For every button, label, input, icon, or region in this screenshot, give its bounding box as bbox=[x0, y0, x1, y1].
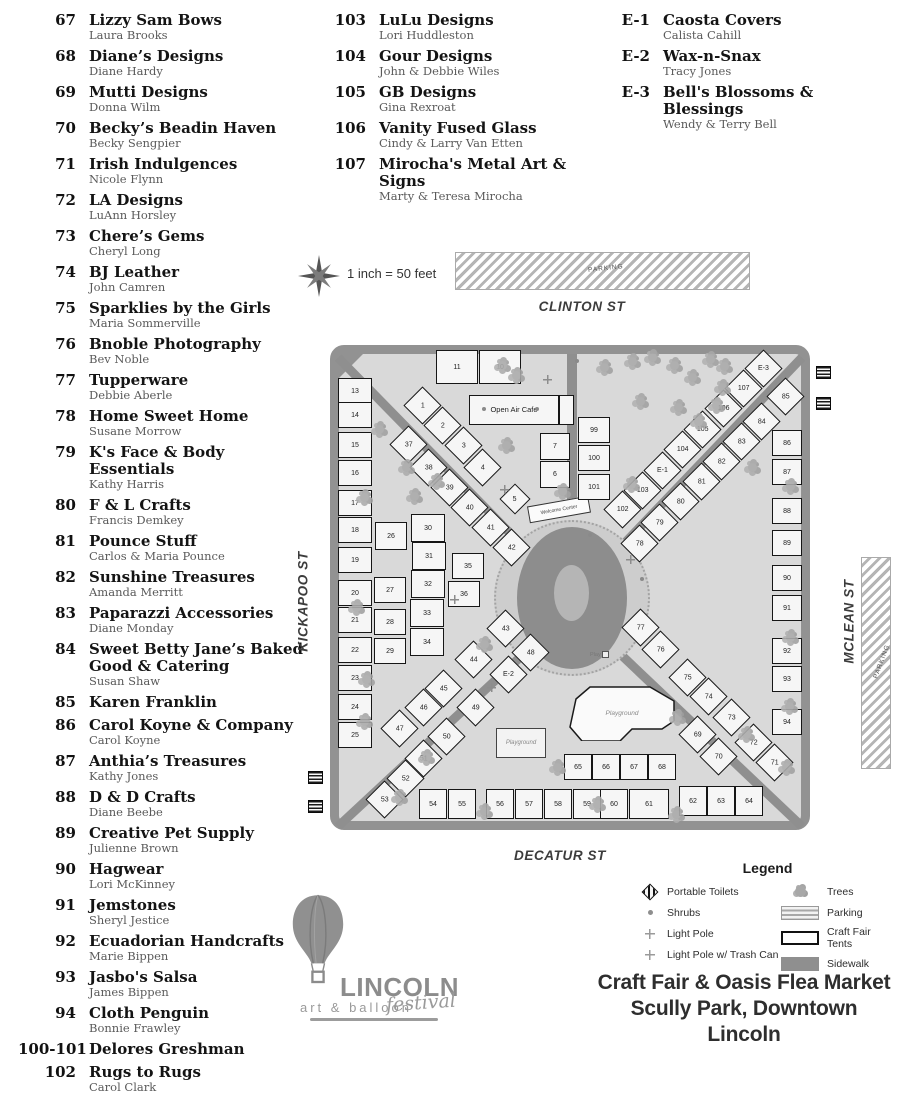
legend-item: Sidewalk bbox=[780, 956, 895, 971]
vendor-person: Marie Bippen bbox=[89, 950, 284, 963]
vendor-person: Tracy Jones bbox=[663, 65, 761, 78]
tree-icon bbox=[674, 403, 683, 412]
vendor-entry: E-3Bell's Blossoms & BlessingsWendy & Te… bbox=[614, 84, 896, 131]
vendor-booth-number: 86 bbox=[18, 717, 76, 747]
vendor-name: Delores Greshman bbox=[89, 1041, 244, 1058]
vendor-booth-number: E-2 bbox=[614, 48, 650, 78]
vendor-person: Nicole Flynn bbox=[89, 173, 237, 186]
parking-label: PARKING bbox=[872, 643, 891, 679]
map-booth-100: 100 bbox=[578, 445, 610, 471]
vendor-name: Wax-n-Snax bbox=[663, 48, 761, 65]
vendor-entry: 85Karen Franklin bbox=[18, 694, 310, 711]
map-booth-6: 6 bbox=[540, 461, 570, 488]
vendor-entry: 80F & L CraftsFrancis Demkey bbox=[18, 497, 310, 527]
vendor-booth-number: 75 bbox=[18, 300, 76, 330]
tree-icon bbox=[360, 717, 369, 726]
vendor-booth-number: 83 bbox=[18, 605, 76, 635]
vendor-person: Becky Sengpier bbox=[89, 137, 276, 150]
vendor-entry: 77TupperwareDebbie Aberle bbox=[18, 372, 310, 402]
vendor-booth-number: 67 bbox=[18, 12, 76, 42]
tree-icon bbox=[720, 362, 729, 371]
vendor-entry: 87Anthia’s TreasuresKathy Jones bbox=[18, 753, 310, 783]
map-booth-68: 68 bbox=[648, 754, 676, 780]
light-pole-icon bbox=[450, 595, 459, 604]
legend-label: Parking bbox=[827, 907, 863, 919]
vendor-person: Amanda Merritt bbox=[89, 586, 255, 599]
tree-icon bbox=[402, 463, 411, 472]
vendor-name: Caosta Covers bbox=[663, 12, 782, 29]
vendor-entry: 94Cloth PenguinBonnie Frawley bbox=[18, 1005, 310, 1035]
legend-label: Light Pole w/ Trash Can bbox=[667, 949, 778, 961]
vendor-name: Becky’s Beadin Haven bbox=[89, 120, 276, 137]
shrub-icon bbox=[588, 533, 592, 537]
map-booth-60: 60 bbox=[600, 789, 628, 819]
map-booth-63: 63 bbox=[707, 786, 735, 816]
legend-item: Light Pole w/ Trash Can bbox=[640, 947, 780, 962]
vendor-name: LuLu Designs bbox=[379, 12, 494, 29]
vendor-person: James Bippen bbox=[89, 986, 197, 999]
tree-icon bbox=[786, 482, 795, 491]
map-booth-86: 86 bbox=[772, 430, 802, 456]
vendor-name: Sparklies by the Girls bbox=[89, 300, 271, 317]
map-booth-91: 91 bbox=[772, 595, 802, 621]
vendor-entry: 73Chere’s GemsCheryl Long bbox=[18, 228, 310, 258]
shrub-icon bbox=[482, 407, 486, 411]
tree-icon bbox=[553, 763, 562, 772]
tree-icon bbox=[672, 810, 681, 819]
tree-icon bbox=[600, 363, 609, 372]
map-booth-31: 31 bbox=[412, 542, 446, 570]
vendor-name: Bnoble Photography bbox=[89, 336, 261, 353]
parking-strip-top: PARKING bbox=[455, 252, 750, 290]
vendor-booth-number: 89 bbox=[18, 825, 76, 855]
map-booth-55: 55 bbox=[448, 789, 476, 819]
vendor-name: Chere’s Gems bbox=[89, 228, 204, 245]
vendor-person: Donna Wilm bbox=[89, 101, 208, 114]
map-booth-88: 88 bbox=[772, 498, 802, 524]
vendor-booth-number: E-1 bbox=[614, 12, 650, 42]
sidewalk-legend-icon bbox=[781, 957, 819, 971]
tree-icon bbox=[786, 633, 795, 642]
vendor-booth-number: 103 bbox=[332, 12, 366, 42]
tree-icon bbox=[432, 477, 441, 486]
map-legend: Legend Portable ToiletsShrubsLight PoleL… bbox=[640, 860, 895, 977]
tree-icon bbox=[782, 763, 791, 772]
tree-icon bbox=[636, 397, 645, 406]
vendor-entry: 75Sparklies by the GirlsMaria Sommervill… bbox=[18, 300, 310, 330]
vendor-name: Bell's Blossoms & Blessings bbox=[663, 84, 896, 118]
park-map: Playground Play Welcome Center Open Air … bbox=[330, 345, 810, 830]
vendor-person: Kathy Jones bbox=[89, 770, 246, 783]
map-booth-92: 92 bbox=[772, 638, 802, 664]
map-booth-101: 101 bbox=[578, 474, 610, 500]
vendor-name: Anthia’s Treasures bbox=[89, 753, 246, 770]
tree-icon bbox=[742, 730, 751, 739]
tree-icon bbox=[502, 441, 511, 450]
vendor-name: Hagwear bbox=[89, 861, 175, 878]
tree-icon bbox=[694, 417, 703, 426]
pole-legend-icon bbox=[645, 929, 655, 939]
portable-toilet-icon bbox=[308, 771, 323, 784]
tree-icon bbox=[362, 675, 371, 684]
vendor-booth-number: 92 bbox=[18, 933, 76, 963]
vendor-person: Carlos & Maria Pounce bbox=[89, 550, 225, 563]
vendor-person: Susane Morrow bbox=[89, 425, 248, 438]
vendor-entry: 92Ecuadorian HandcraftsMarie Bippen bbox=[18, 933, 310, 963]
map-booth-62: 62 bbox=[679, 786, 707, 816]
playground-small: Playground bbox=[496, 728, 546, 758]
play-marker: Play bbox=[590, 651, 609, 658]
legend-item: Light Pole bbox=[640, 926, 780, 941]
vendor-booth-number: 81 bbox=[18, 533, 76, 563]
logo-underline bbox=[310, 1018, 438, 1021]
map-booth-87: 87 bbox=[772, 459, 802, 485]
vendor-entry: 93Jasbo's SalsaJames Bippen bbox=[18, 969, 310, 999]
vendor-entry: 82Sunshine TreasuresAmanda Merritt bbox=[18, 569, 310, 599]
vendor-entry: 69Mutti DesignsDonna Wilm bbox=[18, 84, 310, 114]
map-booth-7: 7 bbox=[540, 433, 570, 460]
tree-icon bbox=[748, 463, 757, 472]
vendor-entry: 84Sweet Betty Jane’s Baked Good & Cateri… bbox=[18, 641, 310, 688]
vendor-entry: 71Irish IndulgencesNicole Flynn bbox=[18, 156, 310, 186]
vendor-entry: 104Gour DesignsJohn & Debbie Wiles bbox=[332, 48, 577, 78]
vendor-booth-number: 73 bbox=[18, 228, 76, 258]
vendor-list-column-3: E-1Caosta CoversCalista CahillE-2Wax-n-S… bbox=[614, 12, 896, 137]
map-booth-13: 13 bbox=[338, 378, 372, 404]
vendor-entry: 81Pounce StuffCarlos & Maria Pounce bbox=[18, 533, 310, 563]
vendor-booth-number: 102 bbox=[18, 1064, 76, 1094]
vendor-name: F & L Crafts bbox=[89, 497, 191, 514]
vendor-person: Cindy & Larry Van Etten bbox=[379, 137, 537, 150]
vendor-person: Carol Clark bbox=[89, 1081, 201, 1094]
play-square-icon bbox=[602, 651, 609, 658]
portable-toilet-icon bbox=[308, 800, 323, 813]
vendor-booth-number: 79 bbox=[18, 444, 76, 491]
tree-icon bbox=[498, 361, 507, 370]
parking-label: PARKING bbox=[588, 263, 624, 274]
map-booth-65: 65 bbox=[564, 754, 592, 780]
vendor-name: Sweet Betty Jane’s Baked Good & Catering bbox=[89, 641, 310, 675]
vendor-entry: 70Becky’s Beadin HavenBecky Sengpier bbox=[18, 120, 310, 150]
vendor-booth-number: 93 bbox=[18, 969, 76, 999]
vendor-person: Susan Shaw bbox=[89, 675, 310, 688]
vendor-booth-number: 68 bbox=[18, 48, 76, 78]
tree-icon bbox=[688, 373, 697, 382]
legend-title: Legend bbox=[640, 860, 895, 876]
map-booth-11: 11 bbox=[436, 350, 478, 384]
map-booth-66: 66 bbox=[592, 754, 620, 780]
map-booth-25: 25 bbox=[338, 722, 372, 748]
map-booth-22: 22 bbox=[338, 637, 372, 663]
parking-strip-right: PARKING bbox=[861, 557, 891, 769]
vendor-name: Diane’s Designs bbox=[89, 48, 223, 65]
map-booth-57: 57 bbox=[515, 789, 543, 819]
vendor-name: Jemstones bbox=[89, 897, 176, 914]
vendor-booth-number: 85 bbox=[18, 694, 76, 711]
tree-icon bbox=[352, 603, 361, 612]
vendor-booth-number: 90 bbox=[18, 861, 76, 891]
vendor-entry: 76Bnoble PhotographyBev Noble bbox=[18, 336, 310, 366]
vendor-person: John Camren bbox=[89, 281, 179, 294]
shrub-icon bbox=[575, 359, 579, 363]
tree-icon bbox=[360, 493, 369, 502]
map-booth-28: 28 bbox=[374, 609, 406, 635]
map-booth-34: 34 bbox=[410, 628, 444, 656]
vendor-list-column-1: 67Lizzy Sam BowsLaura Brooks68Diane’s De… bbox=[18, 12, 310, 1100]
map-booth-24: 24 bbox=[338, 694, 372, 720]
map-booth-56: 56 bbox=[486, 789, 514, 819]
vendor-booth-number: 88 bbox=[18, 789, 76, 819]
vendor-name: Lizzy Sam Bows bbox=[89, 12, 222, 29]
vendor-booth-number: 78 bbox=[18, 408, 76, 438]
vendor-entry: 103LuLu DesignsLori Huddleston bbox=[332, 12, 577, 42]
tree-icon bbox=[785, 702, 794, 711]
vendor-booth-number: 77 bbox=[18, 372, 76, 402]
vendor-name: Home Sweet Home bbox=[89, 408, 248, 425]
tree-icon bbox=[712, 401, 721, 410]
legend-right-column: TreesParkingCraft Fair TentsSidewalk bbox=[780, 884, 895, 977]
vendor-entry: 91JemstonesSheryl Jestice bbox=[18, 897, 310, 927]
vendor-person: Maria Sommerville bbox=[89, 317, 271, 330]
tree-icon bbox=[558, 487, 567, 496]
vendor-entry: 89Creative Pet SupplyJulienne Brown bbox=[18, 825, 310, 855]
vendor-person: Diane Hardy bbox=[89, 65, 223, 78]
vendor-name: GB Designs bbox=[379, 84, 476, 101]
vendor-person: John & Debbie Wiles bbox=[379, 65, 499, 78]
legend-label: Portable Toilets bbox=[667, 886, 739, 898]
map-booth-32: 32 bbox=[411, 570, 445, 598]
tent-legend-icon bbox=[781, 931, 819, 945]
playground-area: Playground bbox=[568, 683, 676, 741]
vendor-entry: E-2Wax-n-SnaxTracy Jones bbox=[614, 48, 896, 78]
vendor-person: Kathy Harris bbox=[89, 478, 310, 491]
shrub-icon bbox=[535, 407, 539, 411]
title-line-2: Scully Park, Downtown Lincoln bbox=[594, 996, 894, 1048]
vendor-entry: 86Carol Koyne & CompanyCarol Koyne bbox=[18, 717, 310, 747]
legend-label: Sidewalk bbox=[827, 958, 869, 970]
tree-icon bbox=[627, 480, 636, 489]
legend-item: Trees bbox=[780, 884, 895, 899]
street-label-decatur: DECATUR ST bbox=[480, 848, 640, 863]
tree-icon bbox=[375, 425, 384, 434]
vendor-name: LA Designs bbox=[89, 192, 183, 209]
map-booth-33: 33 bbox=[410, 599, 444, 627]
toilet-legend-icon bbox=[642, 883, 659, 900]
vendor-person: Diane Monday bbox=[89, 622, 273, 635]
vendor-entry: 105GB DesignsGina Rexroat bbox=[332, 84, 577, 114]
legend-label: Trees bbox=[827, 886, 853, 898]
vendor-entry: 88D & D CraftsDiane Beebe bbox=[18, 789, 310, 819]
festival-logo: LINCOLN art & balloon festival bbox=[288, 882, 458, 1032]
vendor-person: Calista Cahill bbox=[663, 29, 782, 42]
vendor-name: Rugs to Rugs bbox=[89, 1064, 201, 1081]
legend-item: Shrubs bbox=[640, 905, 780, 920]
portable-toilet-icon bbox=[816, 366, 831, 379]
vendor-name: Tupperware bbox=[89, 372, 188, 389]
vendor-booth-number: 84 bbox=[18, 641, 76, 688]
vendor-person: Debbie Aberle bbox=[89, 389, 188, 402]
map-booth-99: 99 bbox=[578, 417, 610, 443]
vendor-booth-number: 94 bbox=[18, 1005, 76, 1035]
tree-icon bbox=[593, 800, 602, 809]
vendor-person: Lori Huddleston bbox=[379, 29, 494, 42]
vendor-booth-number: 70 bbox=[18, 120, 76, 150]
central-oval-inner bbox=[554, 565, 589, 621]
map-scale: 1 inch = 50 feet bbox=[347, 266, 436, 281]
map-booth-90: 90 bbox=[772, 565, 802, 591]
map-booth-93: 93 bbox=[772, 666, 802, 692]
vendor-entry: 102Rugs to RugsCarol Clark bbox=[18, 1064, 310, 1094]
vendor-booth-number: 72 bbox=[18, 192, 76, 222]
vendor-entry: 72LA DesignsLuAnn Horsley bbox=[18, 192, 310, 222]
tree-icon bbox=[628, 357, 637, 366]
tree-icon bbox=[512, 371, 521, 380]
vendor-booth-number: 69 bbox=[18, 84, 76, 114]
shrub-legend-icon bbox=[648, 910, 653, 915]
light-pole-icon bbox=[543, 375, 552, 384]
vendor-list-column-2: 103LuLu DesignsLori Huddleston104Gour De… bbox=[332, 12, 577, 209]
light-pole-icon bbox=[626, 555, 635, 564]
map-booth-30: 30 bbox=[411, 514, 445, 542]
map-booth-67: 67 bbox=[620, 754, 648, 780]
vendor-name: Carol Koyne & Company bbox=[89, 717, 293, 734]
vendor-person: Diane Beebe bbox=[89, 806, 196, 819]
tree-icon bbox=[410, 492, 419, 501]
tree-icon bbox=[706, 355, 715, 364]
vendor-booth-number: 71 bbox=[18, 156, 76, 186]
vendor-person: Carol Koyne bbox=[89, 734, 293, 747]
map-booth-18: 18 bbox=[338, 517, 372, 543]
vendor-booth-number: 91 bbox=[18, 897, 76, 927]
balloon-icon bbox=[290, 892, 346, 988]
vendor-entry: 74BJ LeatherJohn Camren bbox=[18, 264, 310, 294]
vendor-name: Sunshine Treasures bbox=[89, 569, 255, 586]
vendor-booth-number: 82 bbox=[18, 569, 76, 599]
legend-label: Light Pole bbox=[667, 928, 714, 940]
vendor-booth-number: 107 bbox=[332, 156, 366, 203]
title-line-1: Craft Fair & Oasis Flea Market bbox=[594, 970, 894, 996]
map-booth-29: 29 bbox=[374, 638, 406, 664]
parking-legend-icon bbox=[781, 906, 819, 920]
map-booth-64: 64 bbox=[735, 786, 763, 816]
vendor-name: Irish Indulgences bbox=[89, 156, 237, 173]
tree-legend-icon bbox=[795, 886, 806, 897]
vendor-booth-number: 76 bbox=[18, 336, 76, 366]
tree-icon bbox=[480, 640, 489, 649]
vendor-entry: 78Home Sweet HomeSusane Morrow bbox=[18, 408, 310, 438]
map-booth-26: 26 bbox=[375, 522, 407, 550]
map-booth-54: 54 bbox=[419, 789, 447, 819]
vendor-person: Francis Demkey bbox=[89, 514, 191, 527]
vendor-person: Bonnie Frawley bbox=[89, 1022, 209, 1035]
vendor-person: Wendy & Terry Bell bbox=[663, 118, 896, 131]
vendor-name: K's Face & Body Essentials bbox=[89, 444, 310, 478]
cafe-annex bbox=[559, 395, 574, 425]
map-booth-14: 14 bbox=[338, 402, 372, 428]
legend-label: Shrubs bbox=[667, 907, 700, 919]
vendor-entry: 90HagwearLori McKinney bbox=[18, 861, 310, 891]
vendor-booth-number: 104 bbox=[332, 48, 366, 78]
legend-item: Parking bbox=[780, 905, 895, 920]
logo-script: festival bbox=[385, 990, 456, 1017]
map-booth-19: 19 bbox=[338, 547, 372, 573]
vendor-name: Creative Pet Supply bbox=[89, 825, 254, 842]
light-pole-icon bbox=[487, 683, 496, 692]
vendor-person: Marty & Teresa Mirocha bbox=[379, 190, 577, 203]
vendor-entry: 107Mirocha's Metal Art & SignsMarty & Te… bbox=[332, 156, 577, 203]
vendor-entry: 83Paparazzi AccessoriesDiane Monday bbox=[18, 605, 310, 635]
vendor-name: Pounce Stuff bbox=[89, 533, 225, 550]
map-booth-27: 27 bbox=[374, 577, 406, 603]
vendor-name: Karen Franklin bbox=[89, 694, 217, 711]
svg-text:Playground: Playground bbox=[606, 710, 639, 717]
vendor-booth-number: E-3 bbox=[614, 84, 650, 131]
vendor-name: Mirocha's Metal Art & Signs bbox=[379, 156, 577, 190]
portable-toilet-icon bbox=[816, 397, 831, 410]
vendor-person: Cheryl Long bbox=[89, 245, 204, 258]
tree-icon bbox=[670, 361, 679, 370]
vendor-name: Ecuadorian Handcrafts bbox=[89, 933, 284, 950]
map-booth-61: 61 bbox=[629, 789, 669, 819]
vendor-name: Gour Designs bbox=[379, 48, 499, 65]
legend-item: Craft Fair Tents bbox=[780, 926, 895, 950]
shrub-icon bbox=[640, 577, 644, 581]
light-pole-icon bbox=[500, 485, 509, 494]
vendor-name: BJ Leather bbox=[89, 264, 179, 281]
vendor-person: Julienne Brown bbox=[89, 842, 254, 855]
vendor-booth-number: 105 bbox=[332, 84, 366, 114]
map-booth-15: 15 bbox=[338, 432, 372, 458]
vendor-entry: 67Lizzy Sam BowsLaura Brooks bbox=[18, 12, 310, 42]
vendor-name: Cloth Penguin bbox=[89, 1005, 209, 1022]
legend-label: Craft Fair Tents bbox=[827, 926, 895, 950]
tree-icon bbox=[395, 793, 404, 802]
vendor-booth-number: 74 bbox=[18, 264, 76, 294]
tree-icon bbox=[673, 713, 682, 722]
map-booth-94: 94 bbox=[772, 709, 802, 735]
vendor-booth-number: 106 bbox=[332, 120, 366, 150]
tree-icon bbox=[480, 807, 489, 816]
vendor-entry: 79K's Face & Body EssentialsKathy Harris bbox=[18, 444, 310, 491]
tree-icon bbox=[422, 753, 431, 762]
vendor-person: Gina Rexroat bbox=[379, 101, 476, 114]
map-booth-16: 16 bbox=[338, 460, 372, 486]
page-title: Craft Fair & Oasis Flea Market Scully Pa… bbox=[594, 970, 894, 1048]
vendor-name: Vanity Fused Glass bbox=[379, 120, 537, 137]
vendor-entry: 68Diane’s DesignsDiane Hardy bbox=[18, 48, 310, 78]
street-label-kickapoo: KICKAPOO ST bbox=[296, 537, 311, 667]
pole-legend-icon bbox=[645, 950, 655, 960]
vendor-person: Bev Noble bbox=[89, 353, 261, 366]
vendor-person: Sheryl Jestice bbox=[89, 914, 176, 927]
vendor-name: Jasbo's Salsa bbox=[89, 969, 197, 986]
compass-rose-icon bbox=[298, 255, 340, 297]
tree-icon bbox=[648, 353, 657, 362]
vendor-entry: 100-101Delores Greshman bbox=[18, 1041, 310, 1058]
street-label-clinton: CLINTON ST bbox=[512, 299, 652, 314]
vendor-name: D & D Crafts bbox=[89, 789, 196, 806]
map-booth-89: 89 bbox=[772, 530, 802, 556]
vendor-booth-number: 87 bbox=[18, 753, 76, 783]
street-label-mclean: MCLEAN ST bbox=[842, 557, 857, 687]
vendor-person: LuAnn Horsley bbox=[89, 209, 183, 222]
map-booth-35: 35 bbox=[452, 553, 484, 579]
vendor-booth-number: 100-101 bbox=[18, 1041, 76, 1058]
vendor-entry: 106Vanity Fused GlassCindy & Larry Van E… bbox=[332, 120, 577, 150]
vendor-booth-number: 80 bbox=[18, 497, 76, 527]
legend-item: Portable Toilets bbox=[640, 884, 780, 899]
map-booth-58: 58 bbox=[544, 789, 572, 819]
